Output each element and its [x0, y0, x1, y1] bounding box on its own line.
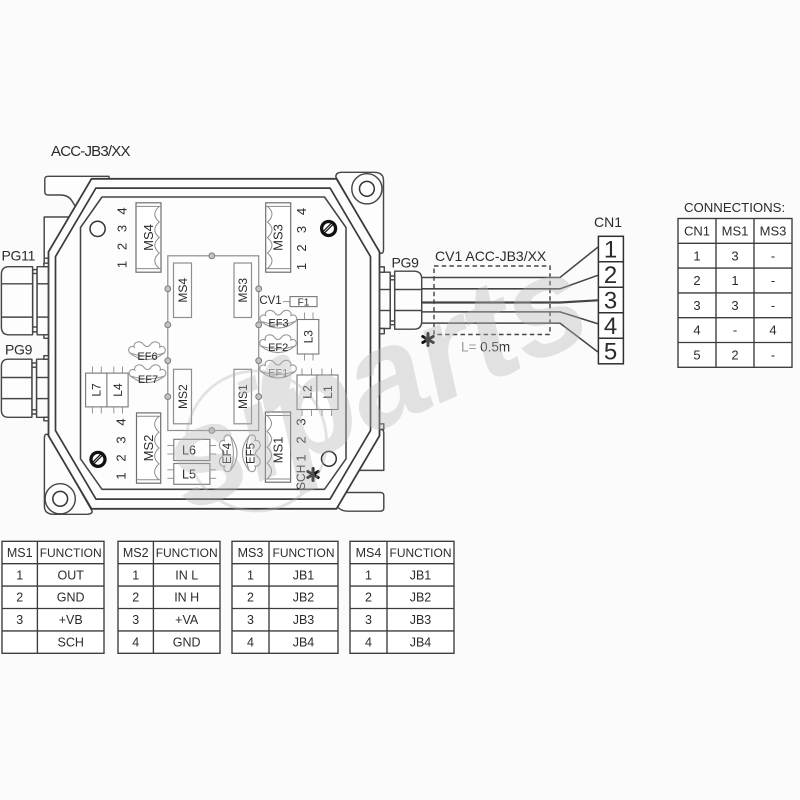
svg-text:3: 3: [604, 287, 617, 314]
svg-text:JB2: JB2: [410, 591, 432, 605]
svg-text:JB3: JB3: [410, 613, 432, 627]
svg-text:CN1: CN1: [594, 214, 622, 230]
svg-text:2: 2: [16, 591, 23, 605]
svg-text:IN H: IN H: [174, 591, 199, 605]
svg-text:4: 4: [114, 418, 129, 425]
svg-text:1: 1: [365, 568, 372, 582]
svg-text:OUT: OUT: [58, 568, 85, 582]
svg-text:3: 3: [132, 613, 139, 627]
svg-text:SCH: SCH: [57, 636, 83, 650]
svg-text:MS2: MS2: [123, 546, 149, 560]
svg-text:2: 2: [731, 348, 738, 363]
svg-text:-: -: [771, 298, 775, 313]
svg-text:2: 2: [693, 273, 700, 288]
svg-text:1: 1: [132, 568, 139, 582]
svg-text:2: 2: [115, 243, 130, 250]
svg-text:4: 4: [247, 636, 254, 650]
svg-text:L4: L4: [111, 383, 125, 397]
svg-text:JB2: JB2: [293, 591, 315, 605]
svg-text:+VA: +VA: [175, 613, 199, 627]
svg-text:MS1: MS1: [722, 224, 749, 239]
svg-text:F1: F1: [298, 297, 310, 308]
svg-text:FUNCTION: FUNCTION: [156, 546, 218, 560]
svg-text:5: 5: [693, 348, 700, 363]
svg-text:MS4: MS4: [356, 546, 382, 560]
svg-text:4: 4: [604, 313, 617, 340]
svg-text:-: -: [771, 273, 775, 288]
svg-text:4: 4: [294, 208, 309, 215]
svg-text:MS2: MS2: [141, 435, 156, 462]
svg-text:MS4: MS4: [141, 224, 156, 251]
svg-text:MS1: MS1: [7, 546, 33, 560]
svg-text:CONNECTIONS:: CONNECTIONS:: [684, 200, 785, 215]
svg-text:3: 3: [115, 225, 130, 232]
svg-text:PG9: PG9: [392, 255, 420, 271]
svg-text:EF7: EF7: [138, 374, 158, 386]
svg-text:2: 2: [365, 591, 372, 605]
svg-text:JB4: JB4: [410, 636, 432, 650]
svg-text:MS3: MS3: [760, 224, 787, 239]
svg-text:FUNCTION: FUNCTION: [273, 546, 335, 560]
svg-text:-: -: [733, 323, 737, 338]
svg-text:4: 4: [132, 636, 139, 650]
svg-text:1: 1: [294, 263, 309, 270]
svg-text:4: 4: [115, 207, 130, 214]
svg-text:MS4: MS4: [176, 278, 190, 303]
svg-text:2: 2: [604, 262, 617, 289]
svg-text:3: 3: [247, 613, 254, 627]
svg-text:2: 2: [294, 244, 309, 251]
svg-text:-: -: [771, 248, 775, 263]
svg-text:IN L: IN L: [175, 568, 198, 582]
svg-text:1: 1: [114, 472, 129, 479]
svg-text:4: 4: [365, 636, 372, 650]
svg-text:FUNCTION: FUNCTION: [40, 546, 102, 560]
svg-text:+VB: +VB: [59, 613, 83, 627]
svg-text:FUNCTION: FUNCTION: [390, 546, 452, 560]
svg-text:1: 1: [604, 236, 617, 263]
svg-text:JB1: JB1: [293, 568, 315, 582]
svg-text:JB4: JB4: [293, 636, 315, 650]
svg-text:1: 1: [16, 568, 23, 582]
svg-text:3: 3: [16, 613, 23, 627]
svg-text:MS3: MS3: [236, 278, 250, 303]
svg-text:GND: GND: [57, 591, 85, 605]
svg-text:GND: GND: [173, 636, 201, 650]
svg-text:3: 3: [693, 298, 700, 313]
svg-text:EF6: EF6: [137, 351, 157, 363]
svg-text:3: 3: [294, 226, 309, 233]
svg-text:PG11: PG11: [2, 248, 36, 264]
svg-text:CN1: CN1: [684, 224, 710, 239]
svg-text:MS3: MS3: [238, 546, 264, 560]
svg-text:3: 3: [114, 436, 129, 443]
svg-text:3: 3: [731, 298, 738, 313]
svg-text:JB1: JB1: [410, 568, 432, 582]
svg-text:CV1: CV1: [259, 295, 281, 307]
svg-text:3: 3: [731, 248, 738, 263]
svg-text:2: 2: [114, 454, 129, 461]
svg-text:2: 2: [247, 591, 254, 605]
svg-text:MS3: MS3: [271, 224, 286, 251]
svg-text:1: 1: [693, 248, 700, 263]
svg-text:1: 1: [731, 273, 738, 288]
svg-text:L7: L7: [90, 383, 104, 397]
svg-text:4: 4: [693, 323, 700, 338]
svg-text:PG9: PG9: [5, 342, 33, 358]
svg-text:EF3: EF3: [268, 318, 288, 330]
svg-text:-: -: [771, 348, 775, 363]
svg-text:3: 3: [365, 613, 372, 627]
svg-text:4: 4: [769, 323, 776, 338]
svg-text:JB3: JB3: [293, 613, 315, 627]
svg-text:1: 1: [115, 261, 130, 268]
svg-text:2: 2: [132, 591, 139, 605]
svg-text:ACC-JB3/XX: ACC-JB3/XX: [51, 143, 130, 160]
svg-text:1: 1: [247, 568, 254, 582]
